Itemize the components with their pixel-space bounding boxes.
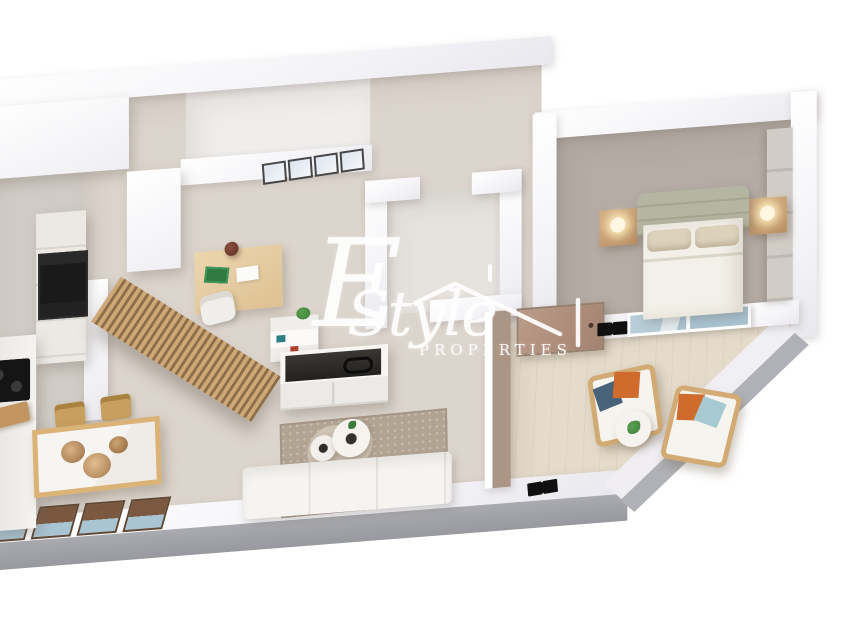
terrace-left-wall: [485, 310, 511, 489]
tv-console: [280, 344, 388, 411]
dining-chair: [100, 393, 132, 421]
tall-cabinet: [127, 168, 181, 273]
duvet-fold: [643, 252, 743, 263]
bedside-lamp: [760, 205, 775, 221]
bed-pillow: [647, 228, 691, 253]
kitchen-island: [0, 420, 36, 533]
bedroom-bottom-wall-right: [749, 299, 799, 327]
picture-frame: [262, 161, 287, 185]
bedside-lamp: [610, 217, 625, 233]
cooktop: [0, 358, 30, 404]
bed-pillow: [695, 224, 739, 249]
nightstand: [599, 208, 637, 247]
kitchen-upper-cabinets: [0, 96, 129, 180]
tv-screen: [285, 348, 381, 382]
console-door-seam: [332, 382, 334, 404]
wall-lamp: [597, 321, 627, 336]
picture-frame: [314, 152, 339, 176]
shelf-plant: [296, 307, 310, 320]
picture-frame: [288, 156, 313, 180]
terrace-plant: [627, 420, 640, 434]
bathroom-top-wall-right: [472, 169, 522, 195]
picture-frame: [340, 148, 365, 172]
nightstand: [749, 196, 787, 235]
bathroom-top-wall-left: [365, 177, 420, 203]
bedroom-left-wall: [533, 113, 557, 331]
shelf-decor-teal: [276, 335, 285, 343]
tv-handle: [343, 356, 373, 374]
apartment-plan: [0, 0, 839, 605]
table-plant-sprig: [348, 421, 356, 430]
door-handle: [588, 323, 593, 328]
oven: [38, 250, 88, 320]
cushion-orange: [613, 372, 641, 398]
double-bed: [643, 218, 743, 320]
property-render: E Style PROPERTIES: [0, 0, 850, 620]
desk-notebook: [204, 267, 230, 284]
entry-door: [517, 302, 605, 357]
